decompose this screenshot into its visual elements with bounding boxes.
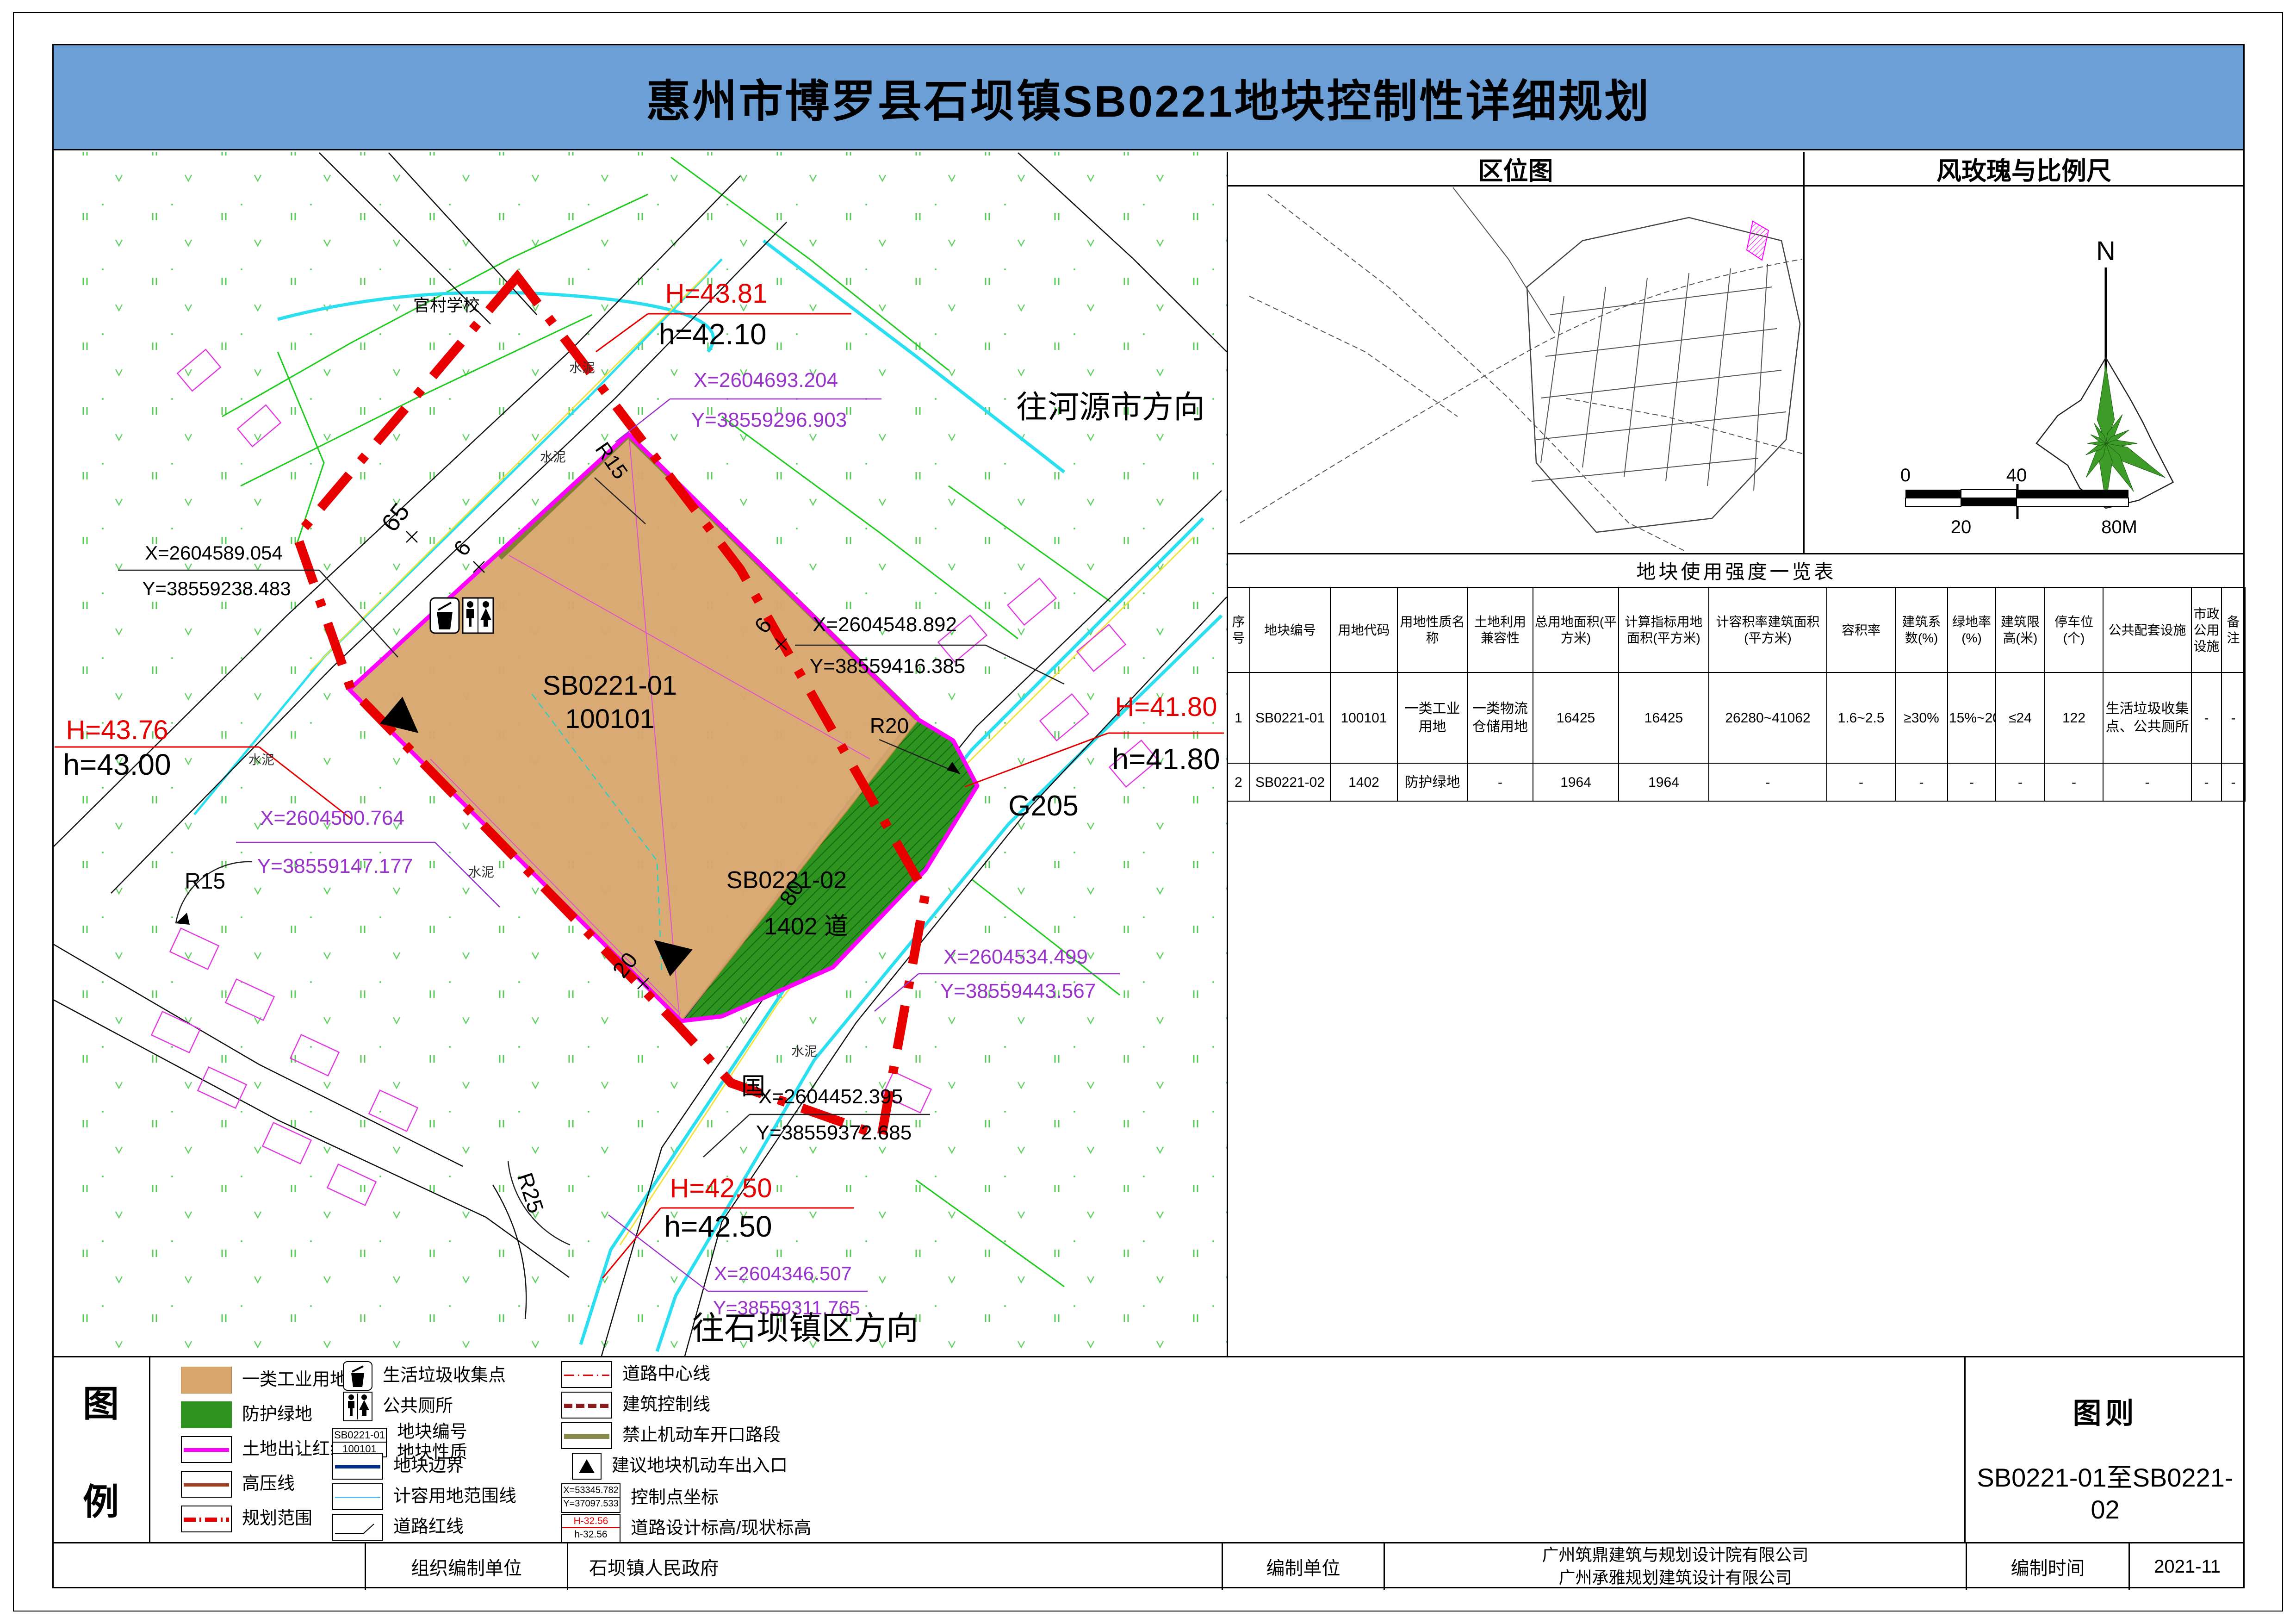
table-header-cell: 总用地面积(平方米): [1533, 587, 1619, 672]
footer-time-label: 编制时间: [1966, 1543, 2128, 1590]
table-cell: 1964: [1533, 763, 1619, 801]
plot-code-sample: SB0221-01: [333, 1429, 386, 1442]
table-cell: SB0221-01: [1250, 672, 1330, 763]
legend-item: 土地出让红线: [181, 1436, 348, 1463]
table-cell: 1964: [1619, 763, 1709, 801]
legend-item-label: 规划范围: [242, 1509, 312, 1529]
table-title: 地块使用强度一览表: [1228, 554, 2245, 586]
table-cell: -: [2191, 763, 2222, 801]
table-cell: -: [1467, 763, 1533, 801]
legend-item-label: 道路中心线: [622, 1364, 710, 1385]
table-cell: -: [2222, 672, 2245, 763]
table-cell: -: [2191, 672, 2222, 763]
legend-char-1: 图: [66, 1375, 136, 1427]
footer-company-1: 广州筑鼎建筑与规划设计院有限公司: [1542, 1544, 1808, 1567]
sheet-ref-label: 图则: [1966, 1390, 2245, 1431]
table-header-cell: 停车位(个): [2045, 587, 2103, 672]
legend-item-label: 计容用地范围线: [393, 1487, 516, 1507]
cadastral-map: [54, 152, 1227, 1356]
legend-item-label: 道路红线: [393, 1517, 464, 1537]
legend-char-2: 例: [66, 1473, 136, 1525]
cp-x-sample: X=53345.782: [562, 1484, 620, 1497]
table-header-cell: 市政公用设施: [2191, 587, 2222, 672]
legend-item: 建议地块机动车出入口: [561, 1453, 788, 1480]
table-cell: 122: [2045, 672, 2103, 763]
trash-icon: [344, 1362, 372, 1390]
table-cell: -: [2103, 763, 2191, 801]
table-cell: 防护绿地: [1397, 763, 1467, 801]
location-map: [1228, 187, 1803, 552]
table-cell: 16425: [1533, 672, 1619, 763]
legend-item: 道路红线: [332, 1514, 464, 1541]
table-cell: SB0221-02: [1250, 763, 1330, 801]
triangle-icon: [579, 1459, 595, 1473]
intensity-table-wrap: 序号地块编号用地代码用地性质名称土地利用兼容性总用地面积(平方米)计算指标用地面…: [1227, 587, 2246, 802]
legend-item: 规划范围: [181, 1506, 312, 1532]
title-bar: 惠州市博罗县石坝镇SB0221地块控制性详细规划: [54, 45, 2243, 150]
table-cell: -: [1709, 763, 1827, 801]
legend-item: 道路中心线: [561, 1361, 710, 1388]
svg-text:80M: 80M: [2101, 517, 2137, 537]
location-map-title: 区位图: [1478, 150, 1553, 187]
legend-item-label: 禁止机动车开口路段: [622, 1425, 781, 1446]
table-cell: 1: [1227, 672, 1250, 763]
table-cell: 2: [1227, 763, 1250, 801]
legend-item: H-32.56h-32.56道路设计标高/现状标高: [561, 1514, 812, 1543]
footer-unit-label: 编制单位: [1222, 1543, 1384, 1590]
wind-rose-title: 风玫瑰与比例尺: [1936, 150, 2111, 187]
footer-org-value: 石坝镇人民政府: [567, 1543, 1222, 1590]
legend-item-label: 建筑控制线: [622, 1395, 710, 1415]
table-cell: ≥30%: [1895, 672, 1948, 763]
wind-rose-header: 风玫瑰与比例尺: [1805, 152, 2243, 185]
legend-item: 计容用地范围线: [332, 1483, 516, 1510]
table-row: 2SB0221-021402防护绿地-19641964---------: [1227, 763, 2245, 801]
legend-item-label: 控制点坐标: [631, 1488, 719, 1508]
table-header-cell: 计容积率建筑面积(平方米): [1709, 587, 1827, 672]
elev-current-sample: h-32.56: [562, 1527, 620, 1541]
table-cell: 16425: [1619, 672, 1709, 763]
table-header-cell: 计算指标用地面积(平方米): [1619, 587, 1709, 672]
footer-bar: 组织编制单位 石坝镇人民政府 编制单位 广州筑鼎建筑与规划设计院有限公司 广州承…: [52, 1542, 2245, 1588]
table-cell: ≤24: [1996, 672, 2045, 763]
table-cell: 15%~20%: [1948, 672, 1996, 763]
table-cell: 一类工业用地: [1397, 672, 1467, 763]
table-cell: 一类物流仓储用地: [1467, 672, 1533, 763]
legend-item-label: 一类工业用地: [242, 1370, 348, 1390]
legend-item: 建筑控制线: [561, 1392, 710, 1419]
elev-design-sample: H-32.56: [562, 1515, 620, 1527]
north-label: N: [2096, 236, 2116, 266]
table-cell: 26280~41062: [1709, 672, 1827, 763]
legend-item: 生活垃圾收集点: [332, 1361, 506, 1391]
table-cell: -: [1895, 763, 1948, 801]
legend-item: 地块边界: [332, 1453, 464, 1480]
table-cell: 生活垃圾收集点、公共厕所: [2103, 672, 2191, 763]
toilet-icon: [344, 1393, 372, 1420]
wind-rose-panel: N 0 40 20 80M: [1805, 187, 2243, 552]
table-header-cell: 容积率: [1827, 587, 1895, 672]
table-header-cell: 用地性质名称: [1397, 587, 1467, 672]
footer-unit-value: 广州筑鼎建筑与规划设计院有限公司 广州承雅规划建筑设计有限公司: [1384, 1543, 1966, 1590]
table-cell: 100101: [1330, 672, 1397, 763]
footer-time-value: 2021-11: [2128, 1543, 2245, 1590]
legend-item-label: 土地出让红线: [242, 1439, 348, 1460]
legend-item: 高压线: [181, 1471, 295, 1498]
table-header-cell: 土地利用兼容性: [1467, 587, 1533, 672]
table-header-cell: 建筑系数(%): [1895, 587, 1948, 672]
table-cell: -: [2222, 763, 2245, 801]
wind-rose: [2036, 358, 2173, 508]
table-header-cell: 用地代码: [1330, 587, 1397, 672]
table-header-cell: 序号: [1227, 587, 1250, 672]
legend-item: 一类工业用地: [181, 1367, 348, 1394]
legend-item-label: 地块边界: [393, 1456, 464, 1476]
table-cell: -: [1948, 763, 1996, 801]
legend-item-label: 道路设计标高/现状标高: [631, 1518, 812, 1539]
location-map-panel: [1228, 187, 1803, 552]
site-highlight: [1747, 221, 1769, 260]
sheet-ref-range: SB0221-01至SB0221-02: [1966, 1457, 2245, 1524]
footer-org-label: 组织编制单位: [365, 1543, 567, 1590]
legend-item: 禁止机动车开口路段: [561, 1422, 781, 1449]
main-map-panel: [54, 152, 1227, 1356]
table-header-cell: 绿地率(%): [1948, 587, 1996, 672]
location-map-header: 区位图: [1228, 152, 1803, 185]
wind-rose-svg: N 0 40 20 80M: [1805, 187, 2243, 552]
legend-panel: 图 例 一类工业用地防护绿地土地出让红线高压线规划范围生活垃圾收集点公共厕所SB…: [52, 1356, 1966, 1542]
table-cell: -: [2045, 763, 2103, 801]
legend-item: 公共厕所: [332, 1392, 453, 1421]
legend-item: 防护绿地: [181, 1401, 312, 1428]
legend-divider: [149, 1357, 150, 1542]
table-title-text: 地块使用强度一览表: [1636, 556, 1836, 585]
svg-text:40: 40: [2006, 465, 2027, 485]
table-cell: -: [1996, 763, 2045, 801]
table-cell: -: [1827, 763, 1895, 801]
legend-item-label: 防护绿地: [242, 1405, 312, 1425]
legend-item-label: 建议地块机动车出入口: [612, 1456, 788, 1476]
table-header-cell: 建筑限高(米): [1996, 587, 2045, 672]
table-header-cell: 地块编号: [1250, 587, 1330, 672]
svg-text:0: 0: [1900, 465, 1911, 485]
page-title: 惠州市博罗县石坝镇SB0221地块控制性详细规划: [646, 65, 1651, 130]
table-cell: 1402: [1330, 763, 1397, 801]
table-cell: 1.6~2.5: [1827, 672, 1895, 763]
table-row: 1SB0221-01100101一类工业用地一类物流仓储用地1642516425…: [1227, 672, 2245, 763]
cp-y-sample: Y=37097.533: [562, 1497, 620, 1510]
table-header-cell: 备注: [2222, 587, 2245, 672]
plan-sheet: 惠州市博罗县石坝镇SB0221地块控制性详细规划: [0, 0, 2296, 1624]
svg-text:20: 20: [1951, 517, 1972, 537]
intensity-table: 序号地块编号用地代码用地性质名称土地利用兼容性总用地面积(平方米)计算指标用地面…: [1227, 587, 2246, 802]
legend-item-label: 高压线: [242, 1474, 295, 1494]
sheet-ref-box: 图则 SB0221-01至SB0221-02: [1966, 1356, 2245, 1542]
legend-item-label: 生活垃圾收集点: [383, 1366, 506, 1386]
table-header-cell: 公共配套设施: [2103, 587, 2191, 672]
footer-company-2: 广州承雅规划建筑设计有限公司: [1558, 1567, 1792, 1589]
legend-item: X=53345.782Y=37097.533控制点坐标: [561, 1483, 719, 1513]
legend-item-label: 公共厕所: [383, 1396, 453, 1417]
